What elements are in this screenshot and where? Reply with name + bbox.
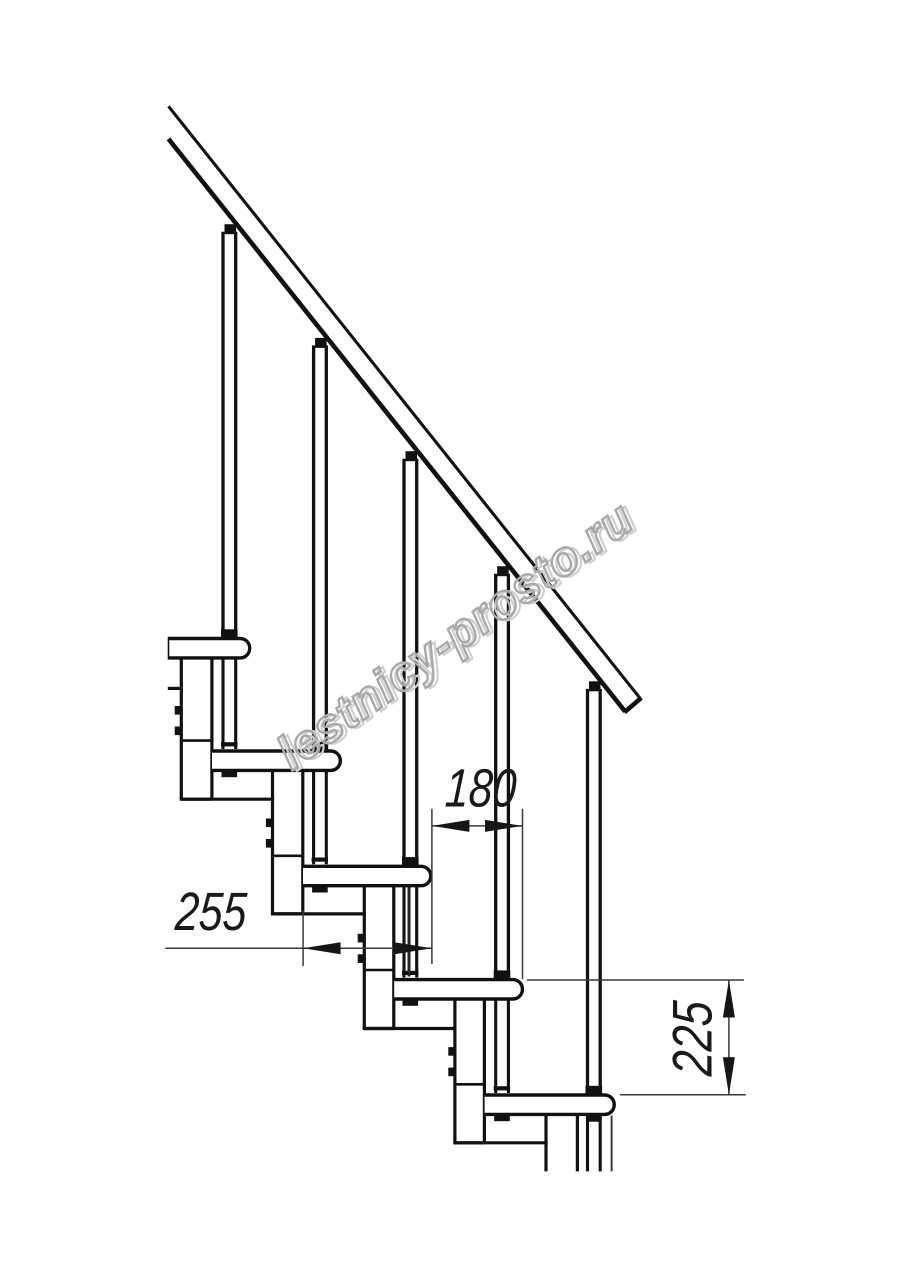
svg-text:225: 225 [661, 998, 724, 1078]
svg-text:255: 255 [173, 882, 249, 942]
svg-text:180: 180 [444, 759, 518, 819]
